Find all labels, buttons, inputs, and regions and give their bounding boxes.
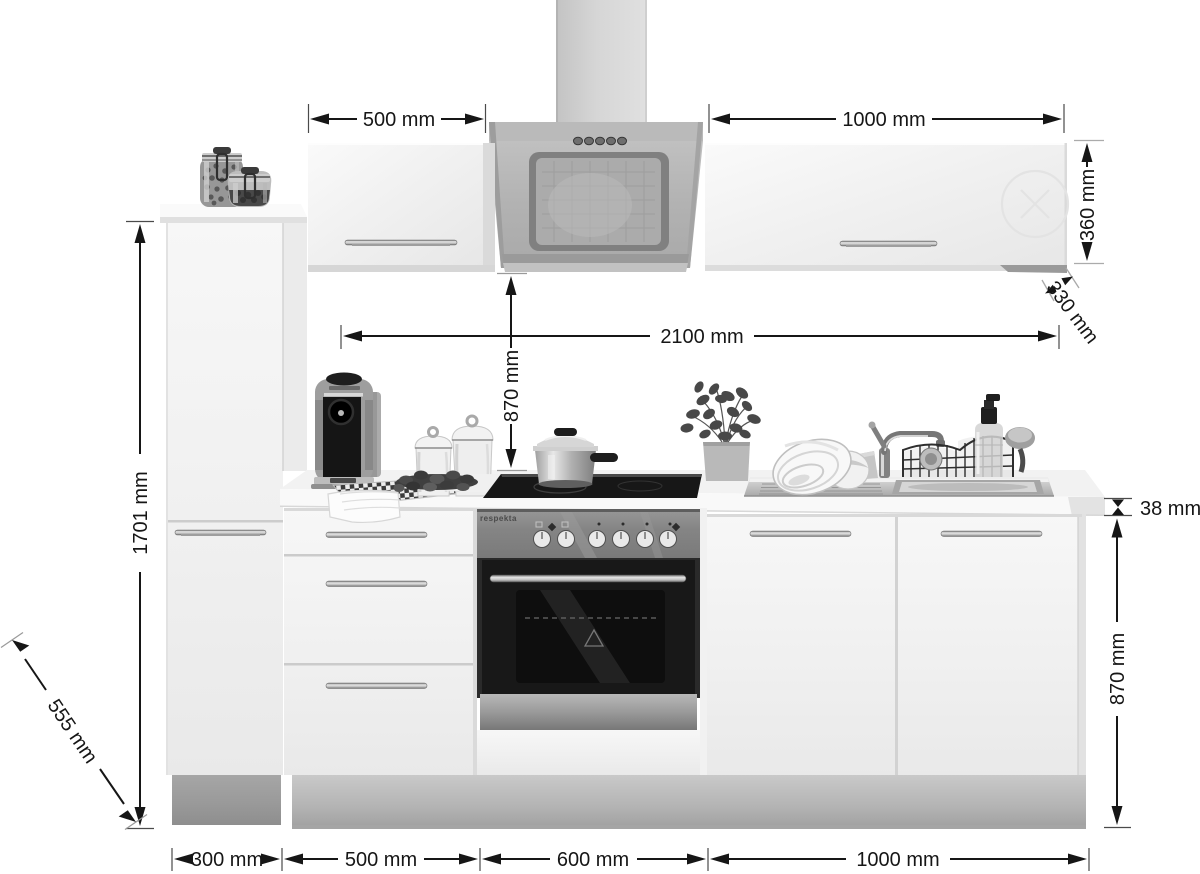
svg-text:500 mm: 500 mm (363, 109, 435, 131)
svg-text:870 mm: 870 mm (1107, 633, 1129, 705)
svg-text:360 mm: 360 mm (1077, 169, 1099, 241)
svg-text:1000 mm: 1000 mm (842, 109, 925, 131)
svg-text:600 mm: 600 mm (557, 849, 629, 871)
svg-text:38 mm: 38 mm (1140, 498, 1200, 520)
svg-text:870 mm: 870 mm (501, 350, 523, 422)
svg-text:2100 mm: 2100 mm (660, 326, 743, 348)
svg-text:500 mm: 500 mm (345, 849, 417, 871)
svg-text:1701 mm: 1701 mm (130, 471, 152, 554)
svg-text:respekta: respekta (480, 514, 517, 523)
svg-text:1000 mm: 1000 mm (856, 849, 939, 871)
svg-text:300 mm: 300 mm (191, 849, 263, 871)
